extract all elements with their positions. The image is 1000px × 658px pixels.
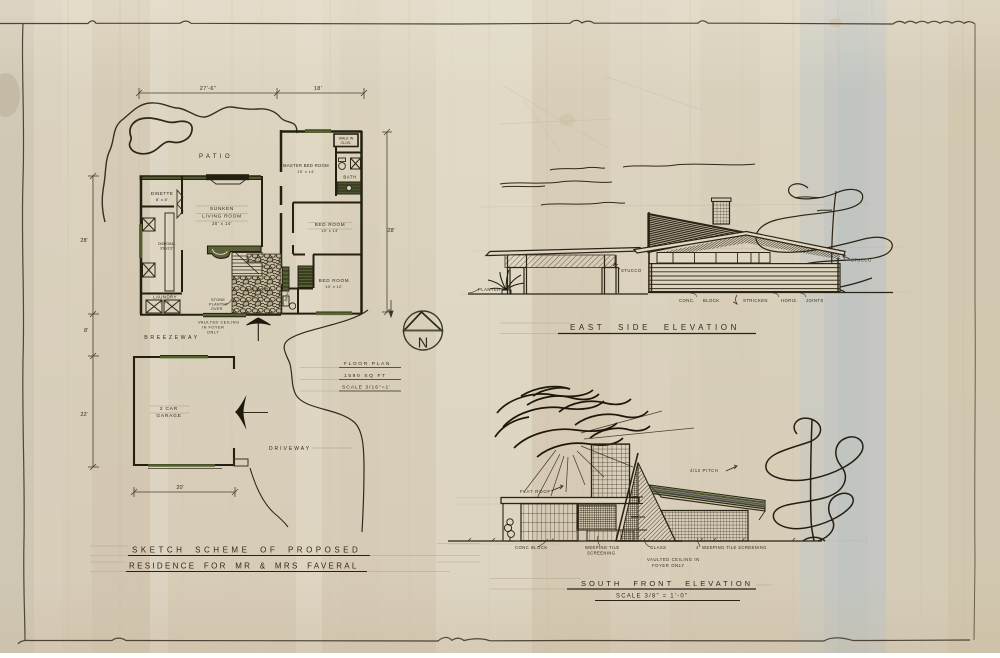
svg-text:STONE: STONE — [211, 298, 225, 302]
svg-text:EAST SIDE ELEVATION: EAST SIDE ELEVATION — [570, 323, 740, 332]
svg-text:2 CAR: 2 CAR — [160, 406, 178, 412]
svg-text:10' x 13': 10' x 13' — [321, 229, 339, 233]
svg-text:20': 20' — [176, 485, 183, 491]
svg-text:VAULTED CEILING IN: VAULTED CEILING IN — [647, 557, 700, 562]
svg-text:18': 18' — [314, 86, 322, 92]
svg-text:BATH: BATH — [343, 175, 356, 180]
svg-text:FLAT ROOF: FLAT ROOF — [520, 489, 551, 494]
svg-text:8': 8' — [84, 328, 88, 334]
svg-text:CONC BLOCK: CONC BLOCK — [515, 545, 548, 550]
svg-text:3'6"x1'3": 3'6"x1'3" — [160, 246, 174, 250]
svg-text:SCALE 3/8" = 1'-0": SCALE 3/8" = 1'-0" — [616, 594, 688, 600]
svg-text:4/12 PITCH: 4/12 PITCH — [690, 468, 718, 473]
svg-text:LIVING ROOM: LIVING ROOM — [202, 214, 242, 220]
svg-text:RESIDENCE FOR MR & MRS FAVERAL: RESIDENCE FOR MR & MRS FAVERAL — [129, 562, 359, 571]
svg-text:SCREENING: SCREENING — [587, 551, 616, 556]
svg-text:10' x 12': 10' x 12' — [325, 285, 343, 289]
svg-text:SUNKEN: SUNKEN — [210, 206, 234, 212]
svg-text:DRIVEWAY: DRIVEWAY — [269, 446, 311, 452]
svg-text:BLOCK: BLOCK — [703, 298, 720, 303]
svg-text:WEEPING TILE: WEEPING TILE — [585, 545, 620, 550]
svg-text:9' x 9': 9' x 9' — [251, 295, 264, 299]
svg-text:CONC.: CONC. — [679, 298, 695, 303]
svg-text:STUCCO: STUCCO — [851, 258, 872, 263]
svg-text:DISPOSAL: DISPOSAL — [158, 242, 176, 246]
svg-text:ONLY: ONLY — [207, 330, 219, 335]
svg-text:HORIZ.: HORIZ. — [781, 298, 798, 303]
svg-text:LAUNDRY: LAUNDRY — [153, 295, 177, 300]
svg-text:WALK IN: WALK IN — [339, 137, 354, 141]
svg-text:28': 28' — [387, 228, 394, 234]
svg-text:PLANTER: PLANTER — [478, 287, 501, 292]
svg-text:N: N — [418, 336, 428, 352]
svg-text:JOINTS: JOINTS — [806, 298, 824, 303]
svg-text:1590 SQ FT: 1590 SQ FT — [344, 373, 387, 379]
svg-text:OVER: OVER — [211, 307, 223, 311]
svg-text:FLOOR PLAN: FLOOR PLAN — [344, 361, 391, 367]
svg-text:CLOS.: CLOS. — [341, 141, 352, 145]
svg-text:8' x 8': 8' x 8' — [156, 197, 168, 202]
svg-text:GLASS: GLASS — [650, 545, 666, 550]
svg-text:SCALE 3/16"=1': SCALE 3/16"=1' — [342, 385, 391, 391]
svg-text:22': 22' — [80, 412, 87, 418]
svg-text:20' x 14': 20' x 14' — [212, 221, 232, 226]
svg-text:STUCCO: STUCCO — [621, 268, 642, 273]
svg-text:15' x 14': 15' x 14' — [297, 170, 315, 174]
svg-text:GARAGE: GARAGE — [156, 413, 181, 419]
svg-text:PATIO: PATIO — [199, 154, 233, 160]
svg-text:27'-6": 27'-6" — [200, 86, 216, 92]
svg-text:BREEZEWAY: BREEZEWAY — [144, 335, 199, 341]
svg-text:SKETCH SCHEME OF PROPOSED: SKETCH SCHEME OF PROPOSED — [132, 546, 361, 555]
svg-text:SOUTH FRONT ELEVATION: SOUTH FRONT ELEVATION — [581, 579, 753, 588]
svg-text:4" WEEPING TILE SCREENING: 4" WEEPING TILE SCREENING — [696, 545, 767, 550]
svg-text:FOYER: FOYER — [246, 288, 269, 294]
svg-text:BED ROOM: BED ROOM — [319, 278, 350, 283]
svg-text:FOYER ONLY: FOYER ONLY — [652, 563, 685, 568]
svg-text:MASTER BED ROOM: MASTER BED ROOM — [283, 163, 329, 168]
svg-text:28': 28' — [80, 238, 87, 244]
svg-text:STRICKEN: STRICKEN — [743, 298, 768, 303]
svg-text:DINETTE: DINETTE — [151, 191, 173, 196]
